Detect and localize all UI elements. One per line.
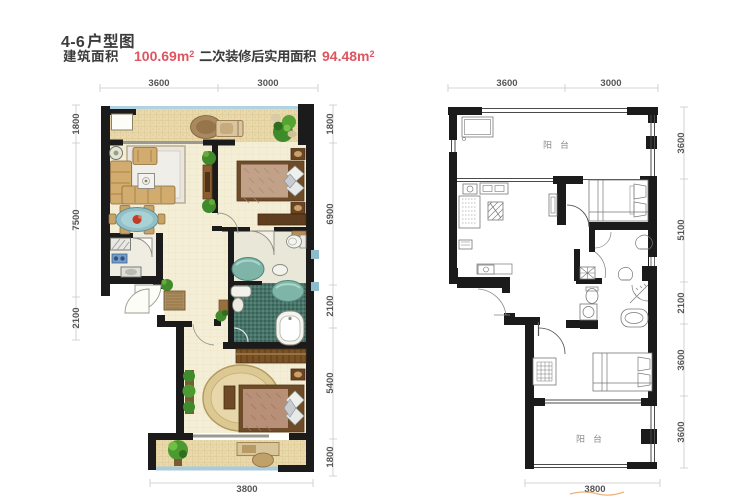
svg-text:1800: 1800 xyxy=(71,113,82,134)
svg-text:3600: 3600 xyxy=(496,78,517,89)
svg-text:3600: 3600 xyxy=(676,132,687,153)
svg-text:3600: 3600 xyxy=(148,78,169,89)
svg-text:3600: 3600 xyxy=(676,421,687,442)
svg-text:2100: 2100 xyxy=(676,292,687,313)
svg-text:5100: 5100 xyxy=(676,219,687,240)
svg-text:94.48m2: 94.48m2 xyxy=(322,48,375,64)
svg-text:1800: 1800 xyxy=(325,113,336,134)
svg-text:5400: 5400 xyxy=(325,372,336,393)
svg-text:7500: 7500 xyxy=(71,209,82,230)
svg-text:3000: 3000 xyxy=(600,78,621,89)
svg-text:2100: 2100 xyxy=(325,295,336,316)
svg-text:1800: 1800 xyxy=(325,446,336,467)
svg-text:100.69m2: 100.69m2 xyxy=(134,48,194,64)
svg-text:4-6: 4-6 xyxy=(61,34,85,51)
svg-text:3600: 3600 xyxy=(676,349,687,370)
svg-text:2100: 2100 xyxy=(71,307,82,328)
svg-text:3000: 3000 xyxy=(257,78,278,89)
svg-text:3800: 3800 xyxy=(236,484,257,495)
svg-text:6900: 6900 xyxy=(325,203,336,224)
